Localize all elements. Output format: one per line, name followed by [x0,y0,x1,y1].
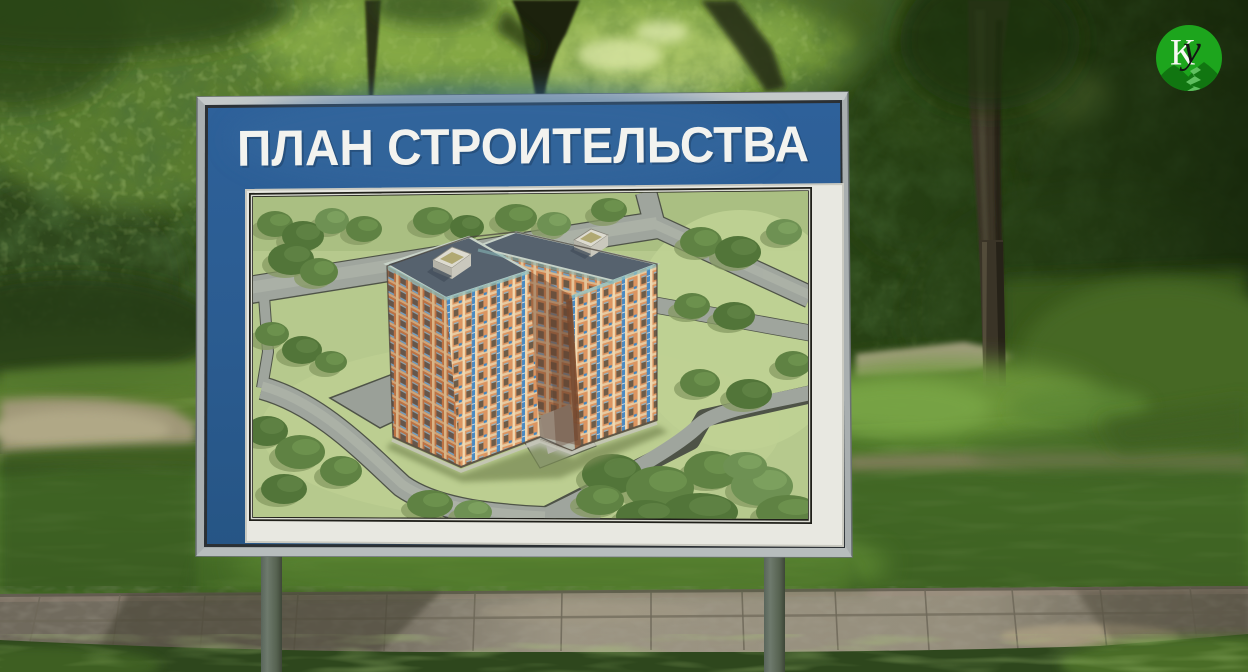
svg-text:ПЛАН СТРОИТЕЛЬСТВА: ПЛАН СТРОИТЕЛЬСТВА [237,115,809,176]
svg-text:у: у [1179,27,1201,72]
